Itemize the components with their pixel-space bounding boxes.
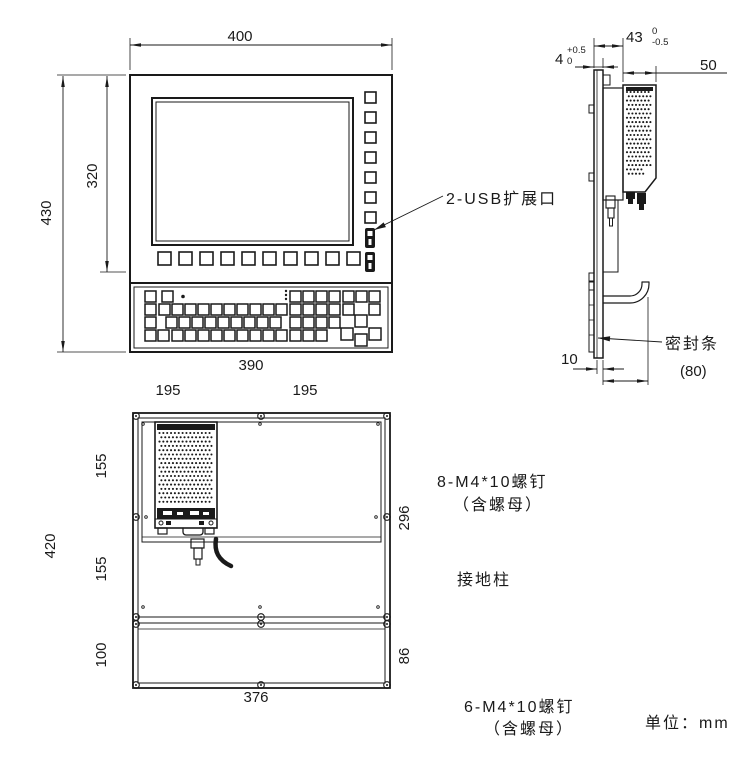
psu-base-strip	[155, 519, 217, 528]
vent-dot	[176, 445, 178, 447]
keyboard-key	[211, 304, 222, 315]
vent-dot	[205, 441, 207, 443]
vent-dot	[635, 155, 637, 157]
vent-dot	[176, 496, 178, 498]
vent-dot	[210, 479, 212, 481]
vent-dot	[648, 108, 650, 110]
vent-dot	[639, 164, 641, 166]
vent-dot	[182, 458, 184, 460]
vent-dot	[172, 436, 174, 438]
keyboard-key	[290, 330, 301, 341]
engineering-drawing-canvas: 400 430 320 2-USB扩展口 43 0 -0.5 4 +0.5 0 …	[0, 0, 748, 764]
vent-dot	[646, 121, 648, 123]
vent-dot	[630, 160, 632, 162]
vent-dot	[642, 130, 644, 132]
vent-dot	[197, 484, 199, 486]
side-plug	[606, 196, 615, 208]
vent-dot	[209, 449, 211, 451]
vent-dot	[626, 108, 628, 110]
screw-center	[260, 415, 262, 417]
dimension-arrow	[594, 44, 605, 48]
vent-dot	[197, 466, 199, 468]
vent-dot	[642, 121, 644, 123]
dim-side-panel-tol-lower: 0	[567, 56, 572, 67]
keyboard-key	[172, 304, 183, 315]
label-ground-post: 接地柱	[457, 571, 511, 589]
keyboard-key	[145, 330, 156, 341]
vent-dot	[182, 484, 184, 486]
keyboard-key	[145, 317, 156, 328]
vent-dot	[195, 445, 197, 447]
keyboard-key	[198, 330, 209, 341]
vent-dot	[187, 471, 189, 473]
vent-dot	[160, 462, 162, 464]
screw-center	[386, 516, 388, 518]
vent-dot	[174, 458, 176, 460]
vent-dot	[209, 492, 211, 494]
vent-dot	[642, 164, 644, 166]
vent-dot	[639, 138, 641, 140]
side-key	[365, 212, 376, 223]
keyboard-key	[237, 304, 248, 315]
vent-dot	[635, 121, 637, 123]
vent-dot	[203, 479, 205, 481]
dimension-arrow	[637, 379, 648, 383]
vent-dot	[642, 95, 644, 97]
dim-rear-bottom-width: 376	[243, 689, 268, 706]
vent-dot	[191, 436, 193, 438]
vent-dot	[631, 104, 633, 106]
usb-port-slot	[369, 239, 372, 245]
keyboard-key	[316, 317, 327, 328]
vent-dot	[626, 100, 628, 102]
vent-dot	[209, 441, 211, 443]
keyboard-key	[343, 291, 354, 302]
dim-rear-width: 390	[238, 357, 263, 374]
vent-dot	[187, 488, 189, 490]
vent-dot	[160, 479, 162, 481]
vent-dot	[203, 453, 205, 455]
vent-dot	[199, 471, 201, 473]
dimension-arrow	[586, 367, 597, 371]
vent-dot	[178, 458, 180, 460]
label-units: 单位：mm	[645, 714, 730, 732]
vent-dot	[637, 108, 639, 110]
vent-dot	[201, 466, 203, 468]
keyboard-key	[316, 291, 327, 302]
keyboard-key	[218, 317, 229, 328]
keyboard-key	[290, 304, 301, 315]
vent-dot	[648, 91, 650, 93]
vent-dot	[209, 466, 211, 468]
psu-handle	[183, 528, 203, 535]
vent-dot	[170, 458, 172, 460]
keyboard-key	[276, 330, 287, 341]
label-screws-8m4-note: （含螺母）	[453, 496, 543, 514]
vent-dot	[183, 436, 185, 438]
vent-dot	[170, 432, 172, 434]
indicator-dot	[285, 290, 287, 292]
vent-dot	[182, 492, 184, 494]
vent-dot	[630, 125, 632, 127]
vent-dot	[205, 492, 207, 494]
label-screws-6m4: 6-M4*10螺钉	[464, 698, 574, 716]
vent-dot	[630, 100, 632, 102]
dimension-arrow	[130, 43, 141, 47]
vent-dot	[630, 151, 632, 153]
psu-mark	[166, 521, 171, 525]
vent-dot	[168, 471, 170, 473]
leader-line	[374, 196, 443, 230]
vent-dot	[191, 479, 193, 481]
keyboard-key	[276, 304, 287, 315]
vent-dot	[648, 160, 650, 162]
vent-dot	[199, 488, 201, 490]
vent-dot	[166, 466, 168, 468]
psu-mark	[199, 521, 204, 525]
vent-dot	[170, 449, 172, 451]
keyboard-key	[303, 317, 314, 328]
vent-dot	[160, 496, 162, 498]
vent-dot	[637, 91, 639, 93]
keyboard-key	[316, 330, 327, 341]
vent-dot	[640, 100, 642, 102]
dimension-arrow	[623, 71, 634, 75]
vent-dot	[168, 479, 170, 481]
vent-dot	[203, 471, 205, 473]
vent-dot	[172, 471, 174, 473]
vent-dot	[178, 466, 180, 468]
vent-dot	[183, 479, 185, 481]
vent-dot	[628, 155, 630, 157]
vent-dot	[191, 462, 193, 464]
keyboard-key	[263, 330, 274, 341]
vent-dot	[191, 453, 193, 455]
rear-outline	[133, 413, 390, 688]
vent-dot	[176, 436, 178, 438]
vent-dot	[209, 484, 211, 486]
vent-dot	[633, 100, 635, 102]
vent-dot	[633, 125, 635, 127]
side-plug	[610, 218, 613, 226]
vent-dot	[162, 449, 164, 451]
function-key	[242, 252, 255, 265]
psu-screw	[209, 521, 213, 525]
side-key	[365, 132, 376, 143]
vent-dot	[182, 441, 184, 443]
vent-dot	[172, 496, 174, 498]
vent-dot	[633, 168, 635, 170]
vent-dot	[210, 445, 212, 447]
vent-dot	[193, 449, 195, 451]
vent-dot	[178, 475, 180, 477]
psu-top-bar	[157, 424, 215, 430]
vent-dot	[166, 475, 168, 477]
dim-front-width: 400	[227, 28, 252, 45]
vent-dot	[631, 138, 633, 140]
vent-dot	[197, 492, 199, 494]
vent-dot	[160, 453, 162, 455]
vent-dot	[640, 125, 642, 127]
keyboard-key	[329, 304, 340, 315]
vent-dot	[185, 449, 187, 451]
vent-dot	[180, 488, 182, 490]
vent-dot	[640, 134, 642, 136]
vent-dot	[164, 496, 166, 498]
vent-dot	[168, 462, 170, 464]
keyboard-key	[224, 330, 235, 341]
vent-dot	[626, 143, 628, 145]
keyboard-key	[290, 291, 301, 302]
vent-dot	[170, 475, 172, 477]
vent-dot	[187, 496, 189, 498]
dimension-arrow	[61, 341, 65, 352]
keyboard-key	[185, 304, 196, 315]
pilot-hole	[377, 606, 380, 609]
keyboard-key	[270, 317, 281, 328]
dimension-arrow	[645, 71, 656, 75]
vent-dot	[176, 488, 178, 490]
vent-dot	[197, 501, 199, 503]
vent-dot	[201, 492, 203, 494]
vent-dot	[182, 449, 184, 451]
side-connector	[628, 199, 633, 204]
function-key	[305, 252, 318, 265]
vent-dot	[187, 453, 189, 455]
vent-dot	[191, 496, 193, 498]
vent-dot	[628, 121, 630, 123]
vent-dot	[631, 173, 633, 175]
vent-dot	[201, 449, 203, 451]
dim-rear-height: 420	[42, 533, 59, 558]
dimension-arrow	[61, 76, 65, 87]
vent-dot	[635, 173, 637, 175]
indicator-dot	[285, 298, 287, 300]
keyboard-key	[172, 330, 183, 341]
vent-dot	[639, 155, 641, 157]
vent-dot	[209, 501, 211, 503]
vent-dot	[174, 432, 176, 434]
vent-dot	[207, 436, 209, 438]
vent-dot	[174, 475, 176, 477]
psu-plug	[196, 559, 200, 565]
dim-rear-lower-height: 86	[396, 648, 413, 665]
vent-dot	[642, 147, 644, 149]
vent-dot	[195, 488, 197, 490]
screw-center	[386, 623, 388, 625]
screw-center	[386, 415, 388, 417]
vent-dot	[166, 441, 168, 443]
keyboard-key	[211, 330, 222, 341]
vent-dot	[197, 458, 199, 460]
keyboard-key	[145, 304, 156, 315]
vent-dot	[164, 462, 166, 464]
vent-dot	[195, 436, 197, 438]
vent-dot	[174, 441, 176, 443]
vent-dot	[203, 496, 205, 498]
vent-dot	[637, 143, 639, 145]
vent-dot	[178, 492, 180, 494]
keyboard-key	[250, 330, 261, 341]
function-key	[158, 252, 171, 265]
vent-dot	[182, 475, 184, 477]
vent-dot	[189, 475, 191, 477]
vent-dot	[162, 475, 164, 477]
screw-center	[135, 684, 137, 686]
vent-dot	[166, 501, 168, 503]
vent-dot	[207, 462, 209, 464]
vent-dot	[164, 453, 166, 455]
rear-inner-border	[138, 418, 385, 683]
vent-dot	[646, 164, 648, 166]
side-key	[365, 112, 376, 123]
vent-dot	[637, 100, 639, 102]
vent-dot	[158, 449, 160, 451]
vent-dot	[201, 475, 203, 477]
keyboard-key	[205, 317, 216, 328]
panel-pc-dimension-drawing: 400 430 320 2-USB扩展口 43 0 -0.5 4 +0.5 0 …	[0, 0, 748, 764]
screw-center	[135, 516, 137, 518]
vent-dot	[644, 100, 646, 102]
vent-dot	[633, 91, 635, 93]
vent-dot	[199, 445, 201, 447]
vent-dot	[639, 147, 641, 149]
vent-dot	[207, 496, 209, 498]
vent-dot	[185, 432, 187, 434]
vent-dot	[646, 138, 648, 140]
vent-dot	[174, 484, 176, 486]
vent-dot	[158, 441, 160, 443]
dim-front-height: 430	[38, 200, 55, 225]
vent-dot	[193, 501, 195, 503]
vent-dot	[178, 441, 180, 443]
vent-dot	[197, 449, 199, 451]
psu-foot	[158, 528, 167, 534]
vent-dot	[164, 479, 166, 481]
label-screws-8m4: 8-M4*10螺钉	[437, 473, 547, 491]
vent-dot	[648, 151, 650, 153]
vent-dot	[158, 501, 160, 503]
screw-center	[260, 623, 262, 625]
vent-dot	[166, 458, 168, 460]
vent-dot	[201, 432, 203, 434]
arrow-key	[369, 328, 381, 340]
dimension-arrow	[603, 379, 614, 383]
keyboard-key	[257, 317, 268, 328]
vent-dot	[176, 462, 178, 464]
keyboard-key	[159, 304, 170, 315]
psu-plug	[191, 539, 204, 548]
vent-dot	[189, 484, 191, 486]
vent-dot	[182, 432, 184, 434]
vent-dot	[210, 462, 212, 464]
vent-dot	[162, 458, 164, 460]
vent-dot	[172, 488, 174, 490]
vent-dot	[168, 436, 170, 438]
pilot-hole	[142, 423, 145, 426]
vent-dot	[205, 432, 207, 434]
label-seal-strip: 密封条	[665, 335, 719, 353]
pilot-hole	[377, 423, 380, 426]
vent-dot	[640, 108, 642, 110]
vent-dot	[187, 479, 189, 481]
vent-dot	[164, 445, 166, 447]
vent-dot	[649, 138, 651, 140]
usb-port-slot	[369, 263, 372, 269]
dimension-arrow	[105, 76, 109, 87]
dim-rear-seg-mid: 155	[93, 556, 110, 581]
vent-dot	[178, 449, 180, 451]
vent-dot	[646, 147, 648, 149]
vent-dot	[168, 488, 170, 490]
vent-dot	[642, 112, 644, 114]
keyboard-key	[316, 304, 327, 315]
psu-plug	[194, 548, 202, 559]
vent-dot	[637, 134, 639, 136]
vent-dot	[209, 432, 211, 434]
vent-dot	[193, 484, 195, 486]
psu-foot	[205, 528, 214, 534]
vent-dot	[183, 453, 185, 455]
vent-dot	[642, 155, 644, 157]
vent-dot	[644, 134, 646, 136]
vent-dot	[185, 458, 187, 460]
vent-dot	[203, 436, 205, 438]
vent-dot	[199, 453, 201, 455]
vent-dot	[187, 436, 189, 438]
usb-port-slot	[368, 231, 373, 236]
keyboard-key	[192, 317, 203, 328]
vent-dot	[195, 479, 197, 481]
vent-dot	[642, 173, 644, 175]
vent-dot	[205, 466, 207, 468]
screw-center	[386, 684, 388, 686]
screw-center	[260, 684, 262, 686]
label-usb-ports: 2-USB扩展口	[446, 190, 557, 208]
vent-dot	[640, 160, 642, 162]
vent-dot	[189, 492, 191, 494]
vent-dot	[185, 484, 187, 486]
vent-dot	[633, 143, 635, 145]
vent-dot	[207, 488, 209, 490]
vent-dot	[635, 138, 637, 140]
side-plug	[608, 208, 614, 218]
vent-dot	[635, 104, 637, 106]
vent-dot	[189, 432, 191, 434]
vent-dot	[626, 151, 628, 153]
vent-dot	[189, 449, 191, 451]
vent-dot	[158, 492, 160, 494]
vent-dot	[630, 168, 632, 170]
cable-hook	[603, 282, 642, 296]
dim-front-screen-height: 320	[84, 163, 101, 188]
vent-dot	[205, 449, 207, 451]
vent-dot	[644, 108, 646, 110]
vent-dot	[178, 432, 180, 434]
vent-dot	[207, 471, 209, 473]
vent-dot	[172, 445, 174, 447]
vent-dot	[170, 441, 172, 443]
side-key	[365, 92, 376, 103]
psu-slot	[177, 512, 183, 515]
vent-dot	[639, 112, 641, 114]
vent-dot	[630, 143, 632, 145]
vent-dot	[637, 168, 639, 170]
dim-side-ref80: (80)	[680, 363, 707, 380]
vent-dot	[628, 164, 630, 166]
keyboard-key	[303, 330, 314, 341]
vent-dot	[210, 453, 212, 455]
